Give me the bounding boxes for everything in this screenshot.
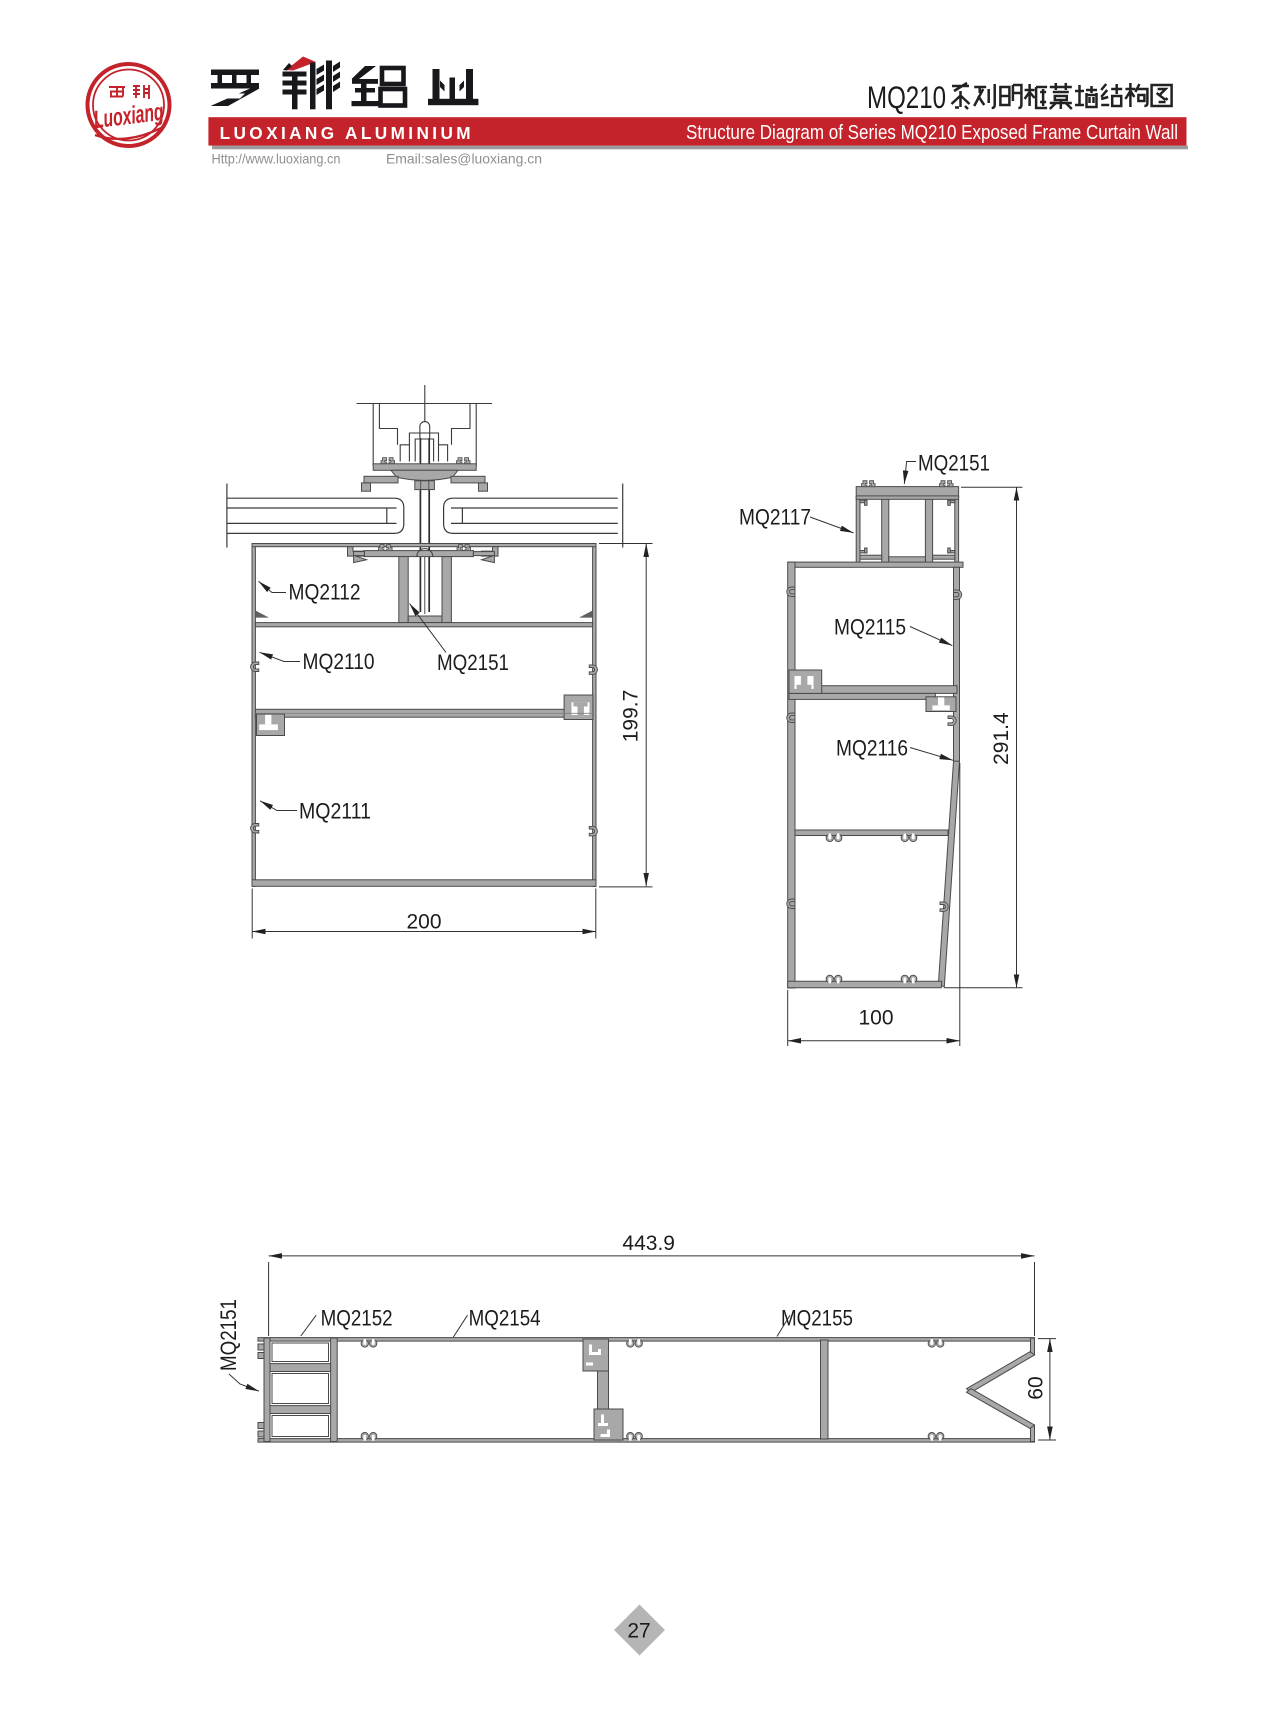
- svg-text:199.7: 199.7: [620, 690, 643, 743]
- svg-text:MQ2112: MQ2112: [289, 580, 361, 605]
- svg-text:MQ2155: MQ2155: [781, 1306, 853, 1331]
- svg-text:MQ2117: MQ2117: [739, 505, 811, 530]
- svg-text:MQ2151: MQ2151: [216, 1299, 241, 1371]
- svg-text:MQ2111: MQ2111: [299, 799, 371, 824]
- svg-text:MQ2151: MQ2151: [437, 650, 509, 675]
- svg-text:27: 27: [627, 1620, 650, 1643]
- svg-text:LUOXIANG ALUMINIUM: LUOXIANG ALUMINIUM: [220, 123, 474, 143]
- svg-text:MQ2154: MQ2154: [469, 1306, 541, 1331]
- svg-text:60: 60: [1024, 1376, 1047, 1399]
- svg-text:Structure Diagram of Series MQ: Structure Diagram of Series MQ210 Expose…: [686, 121, 1178, 144]
- svg-text:MQ2115: MQ2115: [834, 615, 906, 640]
- svg-text:Http://www.luoxiang.cn: Http://www.luoxiang.cn: [212, 151, 341, 167]
- svg-text:100: 100: [858, 1007, 893, 1030]
- svg-text:291.4: 291.4: [990, 712, 1013, 765]
- svg-text:MQ2151: MQ2151: [918, 451, 990, 476]
- svg-text:MQ2152: MQ2152: [321, 1306, 393, 1331]
- svg-text:443.9: 443.9: [622, 1232, 675, 1255]
- svg-text:MQ210: MQ210: [867, 79, 946, 115]
- svg-text:Email:sales@luoxiang.cn: Email:sales@luoxiang.cn: [386, 151, 542, 167]
- svg-text:MQ2110: MQ2110: [303, 649, 375, 674]
- svg-text:MQ2116: MQ2116: [836, 736, 908, 761]
- svg-text:200: 200: [406, 911, 441, 934]
